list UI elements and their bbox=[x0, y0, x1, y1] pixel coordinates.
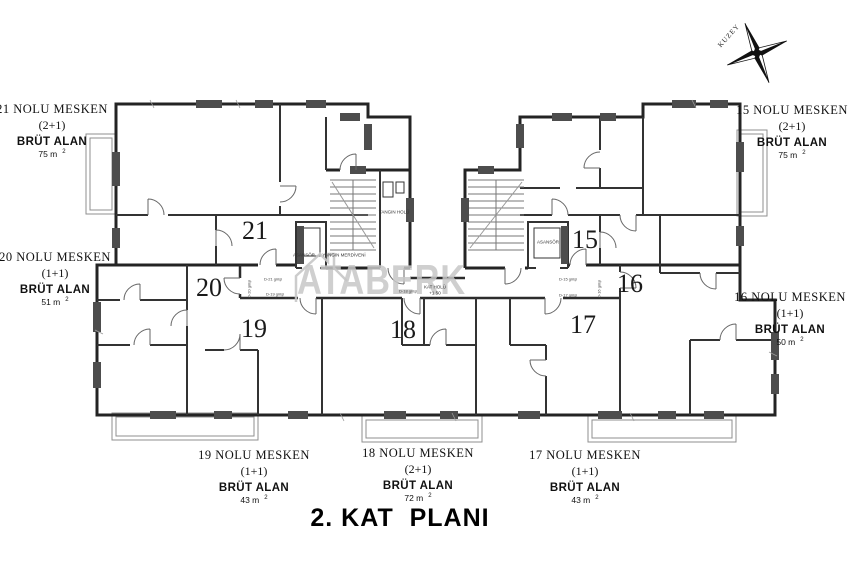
unit-15-plan-type: (2+1) bbox=[736, 119, 848, 134]
unit-19-area: 43 m bbox=[240, 495, 259, 505]
elevator-left-label: ASANSÖR bbox=[293, 253, 315, 258]
unit-17-callout: 17 NOLU MESKEN (1+1) BRÜT ALAN 43 m2 bbox=[529, 448, 641, 505]
floor-hall-label: KAT HOLÜ bbox=[424, 285, 446, 290]
entrance-label-d15: D-15 girişi bbox=[559, 277, 577, 282]
unit-20-plan-number: 20 bbox=[196, 273, 222, 303]
unit-17-area: 43 m bbox=[571, 495, 590, 505]
unit-19-brut-label: BRÜT ALAN bbox=[198, 482, 310, 494]
entrance-label-d16: D-16 girişi bbox=[597, 280, 602, 298]
unit-19-name: 19 NOLU MESKEN bbox=[198, 448, 310, 463]
stairs-right bbox=[468, 180, 524, 250]
unit-21-name: 21 NOLU MESKEN bbox=[0, 102, 108, 117]
entrance-label-d19: D-19 girişi bbox=[266, 292, 284, 297]
fire-hall-label: YANGIN HOLÜ bbox=[379, 210, 410, 215]
entrance-label-d21: D-21 girişi bbox=[264, 277, 282, 282]
unit-16-area: 50 m bbox=[776, 337, 795, 347]
floor-plan-title: 2. KAT PLANI bbox=[310, 504, 489, 533]
unit-21-plan-number: 21 bbox=[242, 216, 268, 246]
unit-15-area-sup: 2 bbox=[802, 150, 805, 156]
unit-16-plan-number: 16 bbox=[617, 269, 643, 299]
unit-17-area-sup: 2 bbox=[595, 495, 598, 501]
unit-15-area: 75 m bbox=[778, 150, 797, 160]
compass-rose bbox=[715, 11, 798, 94]
fire-hall bbox=[380, 170, 404, 268]
unit-19-callout: 19 NOLU MESKEN (1+1) BRÜT ALAN 43 m2 bbox=[198, 448, 310, 505]
unit-16-brut-label: BRÜT ALAN bbox=[734, 324, 846, 336]
unit-20-brut-label: BRÜT ALAN bbox=[0, 284, 111, 296]
unit-20-area: 51 m bbox=[41, 297, 60, 307]
unit-21-area: 75 m bbox=[38, 149, 57, 159]
unit-21-plan-type: (2+1) bbox=[0, 118, 108, 133]
unit-15-plan-number: 15 bbox=[572, 225, 598, 255]
unit-20-plan-type: (1+1) bbox=[0, 266, 111, 281]
unit-19-area-sup: 2 bbox=[264, 495, 267, 501]
floor-hall-level: +1.50 bbox=[429, 291, 440, 296]
unit-15-brut-label: BRÜT ALAN bbox=[736, 137, 848, 149]
entrance-label-d20: D-20 girişi bbox=[247, 280, 252, 298]
unit-19-plan-type: (1+1) bbox=[198, 464, 310, 479]
unit-20-callout: 20 NOLU MESKEN (1+1) BRÜT ALAN 51 m2 bbox=[0, 250, 111, 307]
entrance-label-d18: D-18 girişi bbox=[399, 289, 417, 294]
unit-16-name: 16 NOLU MESKEN bbox=[734, 290, 846, 305]
entrance-label-d17: D-17 girişi bbox=[559, 293, 577, 298]
unit-19-plan-number: 19 bbox=[241, 314, 267, 344]
unit-21-callout: 21 NOLU MESKEN (2+1) BRÜT ALAN 75 m2 bbox=[0, 102, 108, 159]
unit-20-name: 20 NOLU MESKEN bbox=[0, 250, 111, 265]
unit-16-plan-type: (1+1) bbox=[734, 306, 846, 321]
unit-17-name: 17 NOLU MESKEN bbox=[529, 448, 641, 463]
unit-20-area-sup: 2 bbox=[65, 297, 68, 303]
unit-21-brut-label: BRÜT ALAN bbox=[0, 136, 108, 148]
unit-18-area: 72 m bbox=[404, 493, 423, 503]
unit-18-brut-label: BRÜT ALAN bbox=[362, 480, 474, 492]
unit-18-callout: 18 NOLU MESKEN (2+1) BRÜT ALAN 72 m2 bbox=[362, 446, 474, 503]
unit-18-plan-number: 18 bbox=[390, 315, 416, 345]
unit-21-area-sup: 2 bbox=[62, 149, 65, 155]
watermark-text: ATABERK bbox=[297, 256, 466, 304]
floor-plan-page: ATABERK KUZEY 21 NOLU MESKEN (2+1) BRÜT … bbox=[0, 0, 850, 566]
stairs-left bbox=[330, 180, 376, 250]
unit-16-callout: 16 NOLU MESKEN (1+1) BRÜT ALAN 50 m2 bbox=[734, 290, 846, 347]
unit-18-plan-type: (2+1) bbox=[362, 462, 474, 477]
unit-15-name: 15 NOLU MESKEN bbox=[736, 103, 848, 118]
elevator-right-label: ASANSÖR bbox=[537, 240, 559, 245]
unit-18-name: 18 NOLU MESKEN bbox=[362, 446, 474, 461]
unit-18-area-sup: 2 bbox=[428, 493, 431, 499]
unit-17-plan-type: (1+1) bbox=[529, 464, 641, 479]
unit-17-brut-label: BRÜT ALAN bbox=[529, 482, 641, 494]
unit-17-plan-number: 17 bbox=[570, 310, 596, 340]
fire-stairs-label: YANGIN MERDİVENİ bbox=[322, 253, 365, 258]
unit-15-callout: 15 NOLU MESKEN (2+1) BRÜT ALAN 75 m2 bbox=[736, 103, 848, 160]
unit-16-area-sup: 2 bbox=[800, 337, 803, 343]
